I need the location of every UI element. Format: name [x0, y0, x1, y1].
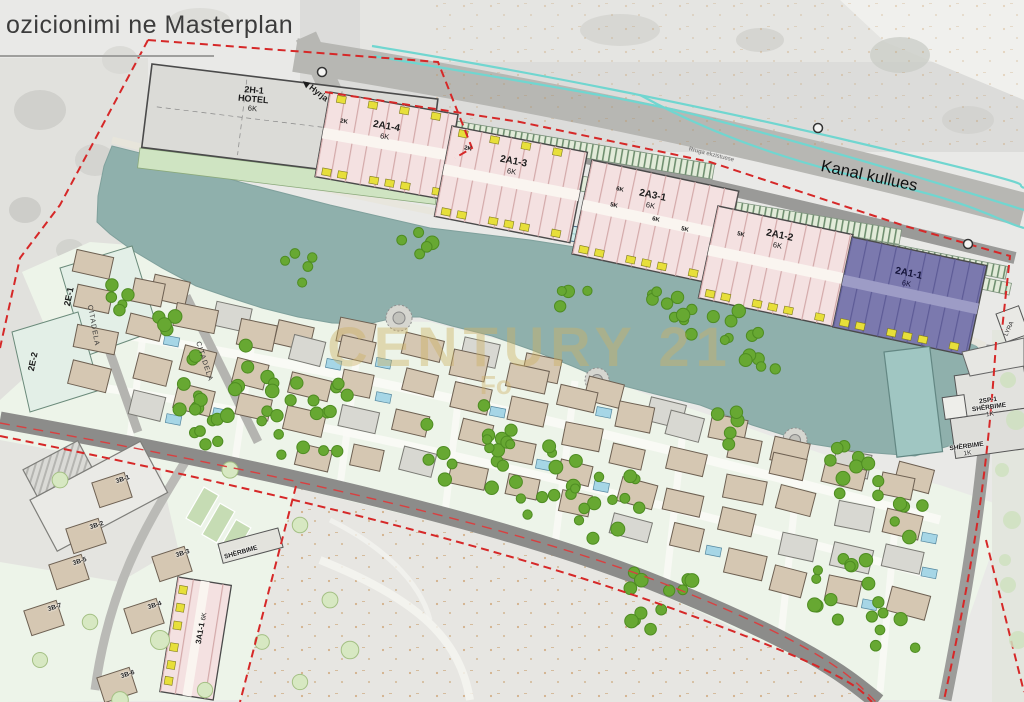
tree: [624, 582, 637, 595]
unit-cell: [752, 299, 762, 308]
tree: [482, 435, 491, 444]
tree: [664, 585, 675, 596]
unit-cell: [551, 229, 561, 238]
tree: [52, 472, 68, 488]
unit-cell: [855, 322, 865, 331]
tree: [478, 400, 490, 412]
tree: [158, 318, 172, 332]
tree: [862, 457, 875, 470]
tree: [274, 430, 284, 440]
tree: [506, 440, 515, 449]
tree: [523, 510, 532, 519]
tree: [290, 249, 300, 259]
unit-cell: [431, 112, 441, 120]
tree: [332, 446, 343, 457]
unit-cell: [336, 95, 346, 103]
sub-label-1: 6K: [615, 186, 624, 194]
masterplan-page: ozicionimi ne Masterplan CENTURY 21 Fo K…: [0, 0, 1024, 702]
unit-cell: [552, 148, 562, 157]
hotel-label: 2H-1 HOTEL 6K: [237, 85, 270, 114]
tree: [832, 614, 843, 625]
tree: [505, 424, 517, 436]
unit-cell: [490, 136, 500, 145]
page-title: ozicionimi ne Masterplan: [6, 12, 293, 38]
unit-cell: [657, 262, 667, 271]
tree: [257, 416, 267, 426]
tree: [634, 573, 648, 587]
tree: [333, 378, 344, 389]
tree: [903, 530, 917, 544]
tree: [437, 446, 450, 459]
tree: [579, 503, 590, 514]
unit-cell: [519, 223, 529, 232]
unit-cell: [441, 208, 451, 217]
tree: [106, 279, 118, 291]
tree: [850, 460, 863, 473]
tree: [724, 427, 736, 439]
tree: [910, 643, 920, 653]
tree: [308, 253, 317, 262]
unit-cell: [488, 217, 498, 226]
tree: [569, 454, 582, 467]
tree: [173, 403, 186, 416]
unit-cell: [337, 171, 347, 179]
tree: [611, 522, 625, 536]
tree: [189, 404, 200, 415]
tree: [255, 635, 270, 650]
tree: [878, 608, 888, 618]
unit-cell: [783, 306, 793, 315]
tree: [866, 611, 877, 622]
unit-cell: [369, 176, 379, 184]
unit-cell: [594, 249, 604, 258]
tree: [870, 640, 881, 651]
tree: [423, 454, 434, 465]
tree: [292, 674, 307, 689]
tree: [195, 426, 206, 437]
tree: [548, 489, 559, 500]
tree: [447, 459, 457, 469]
unit-cell: [400, 182, 410, 190]
unit-cell: [768, 303, 778, 312]
tree: [341, 389, 353, 401]
unit-cell: [504, 220, 514, 229]
tree: [661, 298, 672, 309]
tree: [825, 455, 837, 467]
tree: [873, 476, 884, 487]
tree: [859, 553, 872, 566]
watermark-line1: CENTURY 21: [295, 318, 765, 377]
tree: [497, 460, 508, 471]
unit-cell: [457, 211, 467, 220]
unit-cell: [839, 318, 849, 327]
tree: [297, 441, 310, 454]
tree: [894, 612, 907, 625]
tree: [106, 292, 116, 302]
tree: [319, 446, 329, 456]
tree: [285, 395, 296, 406]
tree: [645, 623, 657, 635]
unit-cell: [385, 179, 395, 187]
tree: [220, 409, 234, 423]
tree: [485, 481, 498, 494]
title-divider: [0, 55, 214, 57]
tree: [277, 450, 286, 459]
unit-cell: [641, 259, 651, 268]
end-label-2A1-4: 2K: [340, 118, 349, 126]
tree: [177, 378, 190, 391]
tree: [82, 614, 97, 629]
sub-label-4: 5K: [680, 226, 689, 234]
tree: [222, 462, 238, 478]
tree: [999, 554, 1011, 566]
sub-label-2: 5K: [609, 202, 618, 210]
tree: [292, 517, 307, 532]
sub-label-3: 6K: [651, 216, 660, 224]
tree: [265, 384, 279, 398]
tree: [298, 278, 307, 287]
tree: [594, 472, 603, 481]
watermark-line2: Fo: [480, 372, 512, 399]
unit-cell: [579, 245, 589, 254]
tree: [1003, 511, 1021, 529]
tree: [624, 470, 637, 483]
tree: [831, 442, 843, 454]
unit-cell: [521, 142, 531, 151]
tree: [813, 566, 822, 575]
tree: [656, 604, 667, 615]
tree: [845, 561, 855, 571]
tree: [310, 407, 323, 420]
tree: [485, 443, 494, 452]
tree: [671, 291, 683, 303]
tree: [557, 286, 566, 295]
tree: [421, 418, 433, 430]
tree: [812, 574, 821, 583]
tree: [571, 484, 580, 493]
tree: [723, 438, 735, 450]
tree: [543, 440, 556, 453]
tree: [291, 377, 303, 389]
tree: [808, 598, 822, 612]
unit-cell: [949, 342, 959, 351]
tree: [324, 405, 336, 417]
tree: [652, 287, 662, 297]
tree: [634, 502, 645, 513]
tree: [516, 494, 525, 503]
tree: [549, 460, 563, 474]
tree: [583, 286, 592, 295]
tree: [836, 471, 850, 485]
unit-cell: [321, 168, 331, 176]
tree: [608, 495, 617, 504]
tree: [213, 436, 223, 446]
tree: [536, 491, 547, 502]
tree: [770, 364, 780, 374]
tree: [122, 289, 134, 301]
tree: [509, 476, 522, 489]
unit-cell: [368, 101, 378, 109]
unit-cell: [625, 255, 635, 264]
tree: [825, 593, 837, 605]
unit-cell: [815, 313, 825, 322]
tree: [620, 493, 630, 503]
tree: [229, 383, 242, 396]
tree: [1000, 577, 1016, 593]
tree: [1000, 372, 1016, 388]
tree: [890, 517, 899, 526]
tree: [873, 597, 884, 608]
unit-cell: [918, 335, 928, 344]
tree: [587, 532, 599, 544]
tree: [625, 614, 639, 628]
tree: [414, 227, 424, 237]
tree: [281, 256, 290, 265]
tree: [239, 339, 252, 352]
unit-cell: [399, 106, 409, 114]
aerial-speckle: [430, 0, 1024, 150]
tree: [862, 577, 875, 590]
unit-cell: [886, 328, 896, 337]
tree: [438, 473, 451, 486]
tree: [875, 625, 885, 635]
tree: [322, 592, 338, 608]
unit-cell: [721, 293, 731, 302]
unit-cell: [705, 289, 715, 298]
tree: [32, 652, 47, 667]
tree: [893, 497, 906, 510]
tree: [685, 574, 699, 588]
tree: [711, 408, 724, 421]
tree: [114, 304, 125, 315]
tree: [150, 630, 169, 649]
tree: [308, 395, 319, 406]
tree: [834, 488, 845, 499]
tree: [730, 406, 742, 418]
tree: [917, 500, 929, 512]
tree: [397, 235, 407, 245]
tree: [421, 242, 432, 253]
unit-cell: [902, 332, 912, 341]
end-label-2A1-2: 5K: [736, 231, 745, 239]
aerial-blob: [14, 90, 66, 130]
tree: [197, 682, 212, 697]
tree: [574, 516, 583, 525]
tree: [873, 490, 884, 501]
aerial-blob: [9, 197, 41, 223]
tree: [242, 361, 254, 373]
tree: [341, 641, 359, 659]
tree: [554, 301, 565, 312]
tree: [271, 409, 283, 421]
tree: [303, 262, 313, 272]
tree: [995, 463, 1009, 477]
unit-cell: [688, 269, 698, 278]
end-label-2A1-3: 2K: [463, 145, 472, 153]
tree: [200, 439, 211, 450]
